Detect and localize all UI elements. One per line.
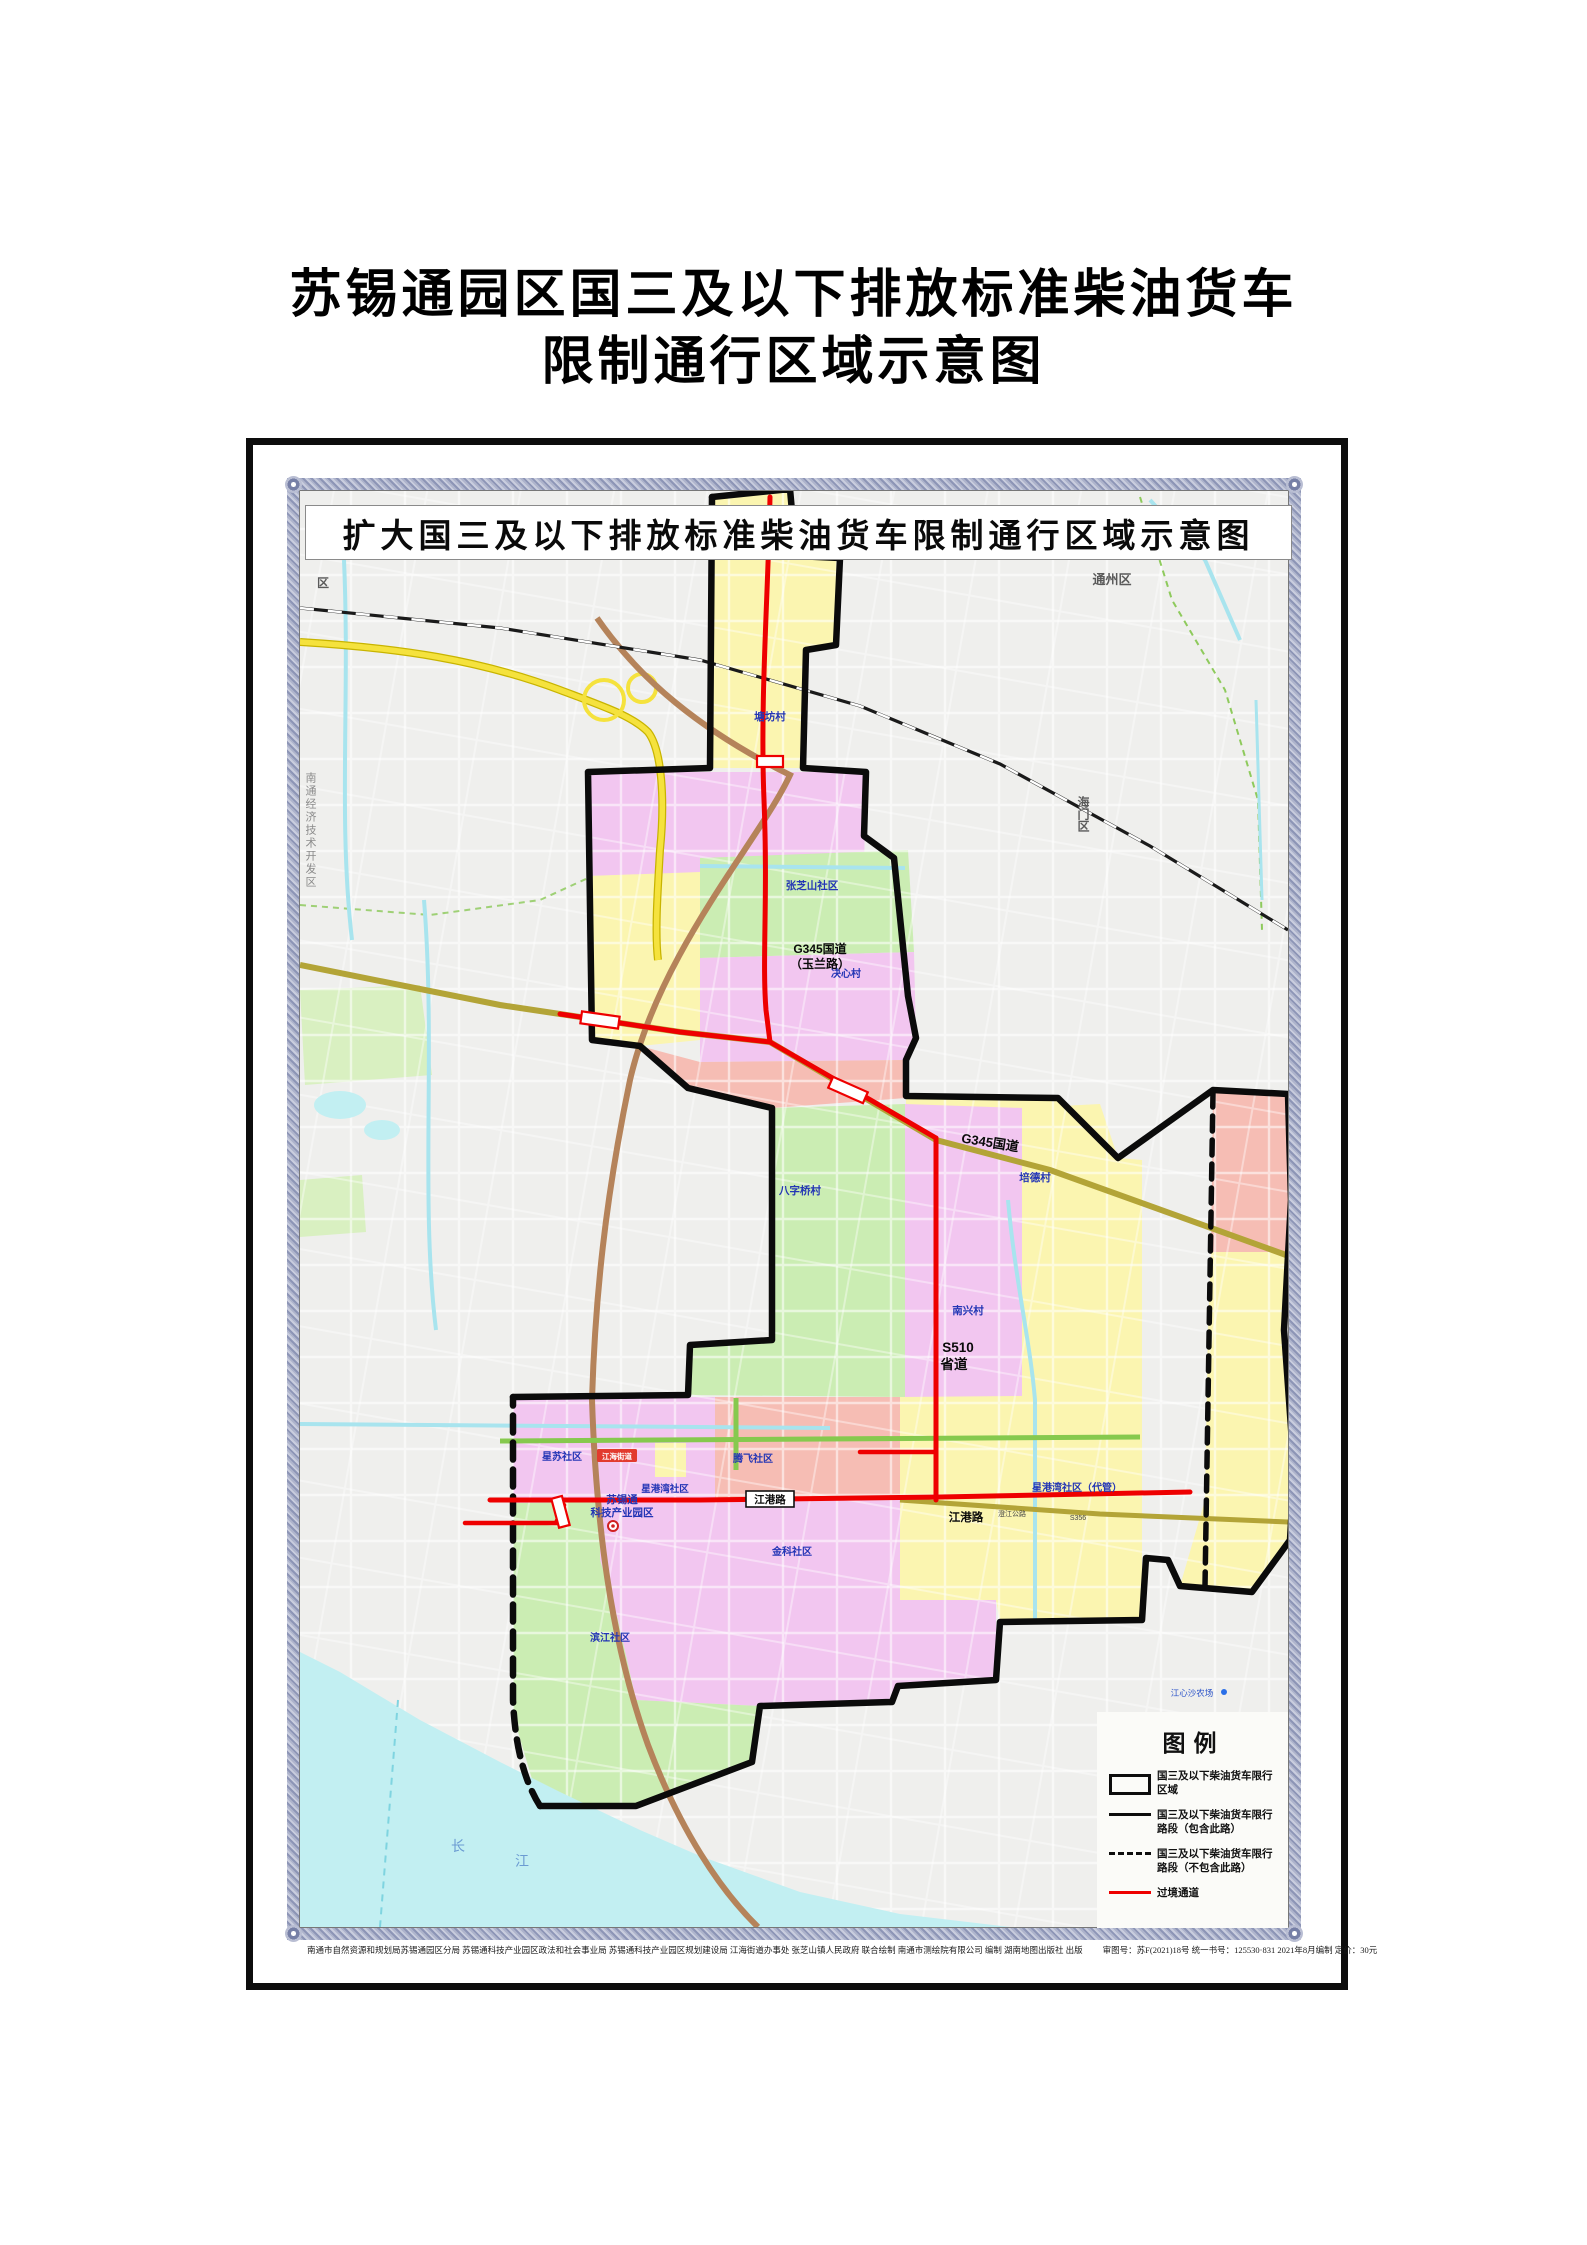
page-title-line1: 苏锡通园区国三及以下排放标准柴油货车 <box>0 262 1587 329</box>
dashed-line-symbol <box>1109 1852 1157 1855</box>
road-label-s510: S510 <box>942 1340 974 1355</box>
park-target-icon-dot <box>611 1524 615 1528</box>
page-title-line2: 限制通行区域示意图 <box>0 329 1587 396</box>
map-banner-title: 扩大国三及以下排放标准柴油货车限制通行区域示意图 <box>305 505 1292 560</box>
community-label: 金科社区 <box>771 1545 812 1558</box>
farm-label: 江心沙农场 <box>1171 1688 1214 1698</box>
restricted-area-symbol <box>1109 1774 1157 1795</box>
park-name-label-1: 苏锡通 <box>606 1493 638 1506</box>
river-name-label-1: 长 <box>451 1839 465 1855</box>
road-label-s510-2: 省道 <box>940 1356 969 1372</box>
road-label-s356: S356 <box>1070 1515 1086 1522</box>
farm-point-icon <box>1221 1689 1227 1695</box>
village-label: 培德村 <box>1019 1171 1051 1184</box>
community-label: 星港湾社区（代管） <box>1032 1481 1122 1494</box>
district-label-tongzhou: 通州区 <box>1092 572 1131 587</box>
legend-item-label: 过境通道 <box>1157 1887 1199 1901</box>
legend-item-label: 国三及以下柴油货车限行路段（包含此路） <box>1157 1809 1278 1837</box>
ornament-corner-medallion <box>1286 476 1303 493</box>
community-label: 腾飞社区 <box>732 1452 773 1465</box>
legend-box: 图例 国三及以下柴油货车限行区域 国三及以下柴油货车限行路段（包含此路） 国三及… <box>1097 1712 1288 1928</box>
community-label: 滨江社区 <box>590 1631 630 1644</box>
ornament-corner-medallion <box>285 1925 302 1942</box>
credits-right: 审图号：苏F(2021)18号 统一书号：125530·831 2021年8月编… <box>1103 1944 1378 1956</box>
legend-title: 图例 <box>1109 1724 1278 1758</box>
credits-left: 南通市自然资源和规划局苏锡通园区分局 苏锡通科技产业园区政法和社会事业局 苏锡通… <box>307 1944 1083 1956</box>
road-label-g345-yulan: G345国道 <box>793 941 846 956</box>
road-label-jianggang-boxed: 江港路 <box>754 1493 786 1506</box>
village-label: 决心村 <box>831 967 861 980</box>
legend-item-restricted-road-excl: 国三及以下柴油货车限行路段（不包含此路） <box>1109 1848 1278 1876</box>
ornament-corner-medallion <box>1286 1925 1303 1942</box>
community-label: 星港湾社区 <box>641 1483 689 1495</box>
legend-item-restricted-area: 国三及以下柴油货车限行区域 <box>1109 1770 1278 1798</box>
district-label-kaifaqu: 南通经济技术开发区 <box>304 772 317 889</box>
pond <box>364 1120 400 1140</box>
road-label-jianggang: 江港路 <box>949 1510 984 1524</box>
street-office-badge-label: 江海街道 <box>602 1451 632 1461</box>
district-label-haimen: 海门区 <box>1076 795 1090 833</box>
community-label: 星苏社区 <box>542 1450 582 1463</box>
ornament-corner-medallion <box>285 476 302 493</box>
legend-item-label: 国三及以下柴油货车限行区域 <box>1157 1770 1278 1798</box>
legend-item-label: 国三及以下柴油货车限行路段（不包含此路） <box>1157 1848 1278 1876</box>
village-label: 塘坊村 <box>754 710 786 723</box>
park-name-label-2: 科技产业园区 <box>591 1506 654 1519</box>
legend-item-transit-channel: 过境通道 <box>1109 1887 1278 1901</box>
village-label: 南兴村 <box>952 1304 984 1317</box>
community-label: 张芝山社区 <box>786 879 839 892</box>
village-label: 八字桥村 <box>778 1184 821 1197</box>
river-name-label-2: 江 <box>515 1854 529 1870</box>
red-line-symbol <box>1109 1891 1157 1894</box>
solid-line-symbol <box>1109 1813 1157 1816</box>
road-label-chengjiang: 澄江公路 <box>998 1509 1026 1518</box>
district-label-fragment: 区 <box>317 576 329 590</box>
page-title: 苏锡通园区国三及以下排放标准柴油货车 限制通行区域示意图 <box>0 262 1587 396</box>
pond <box>314 1091 366 1119</box>
map-figure-frame: 塘坊村 张芝山社区 G345国道 （玉兰路） 决心村 八字桥村 南兴村 培德村 … <box>246 438 1348 1990</box>
map-credits: 南通市自然资源和规划局苏锡通园区分局 苏锡通科技产业园区政法和社会事业局 苏锡通… <box>307 1944 1283 1956</box>
legend-item-restricted-road-incl: 国三及以下柴油货车限行路段（包含此路） <box>1109 1809 1278 1837</box>
